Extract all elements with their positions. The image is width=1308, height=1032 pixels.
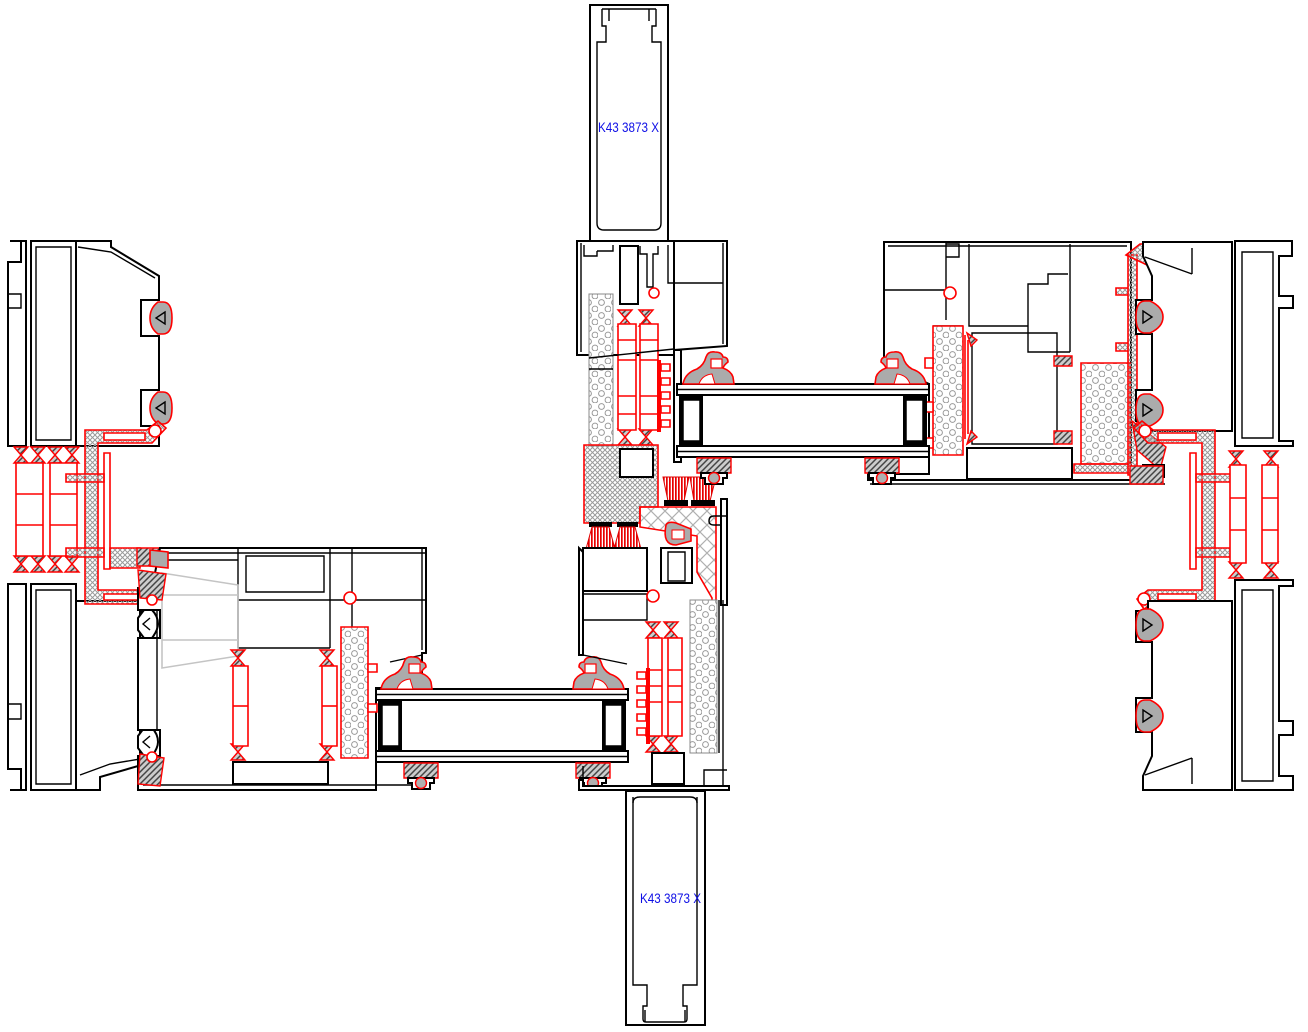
svg-text:K43 3873 X: K43 3873 X — [640, 891, 701, 906]
svg-text:K43 3873 X: K43 3873 X — [598, 120, 659, 135]
